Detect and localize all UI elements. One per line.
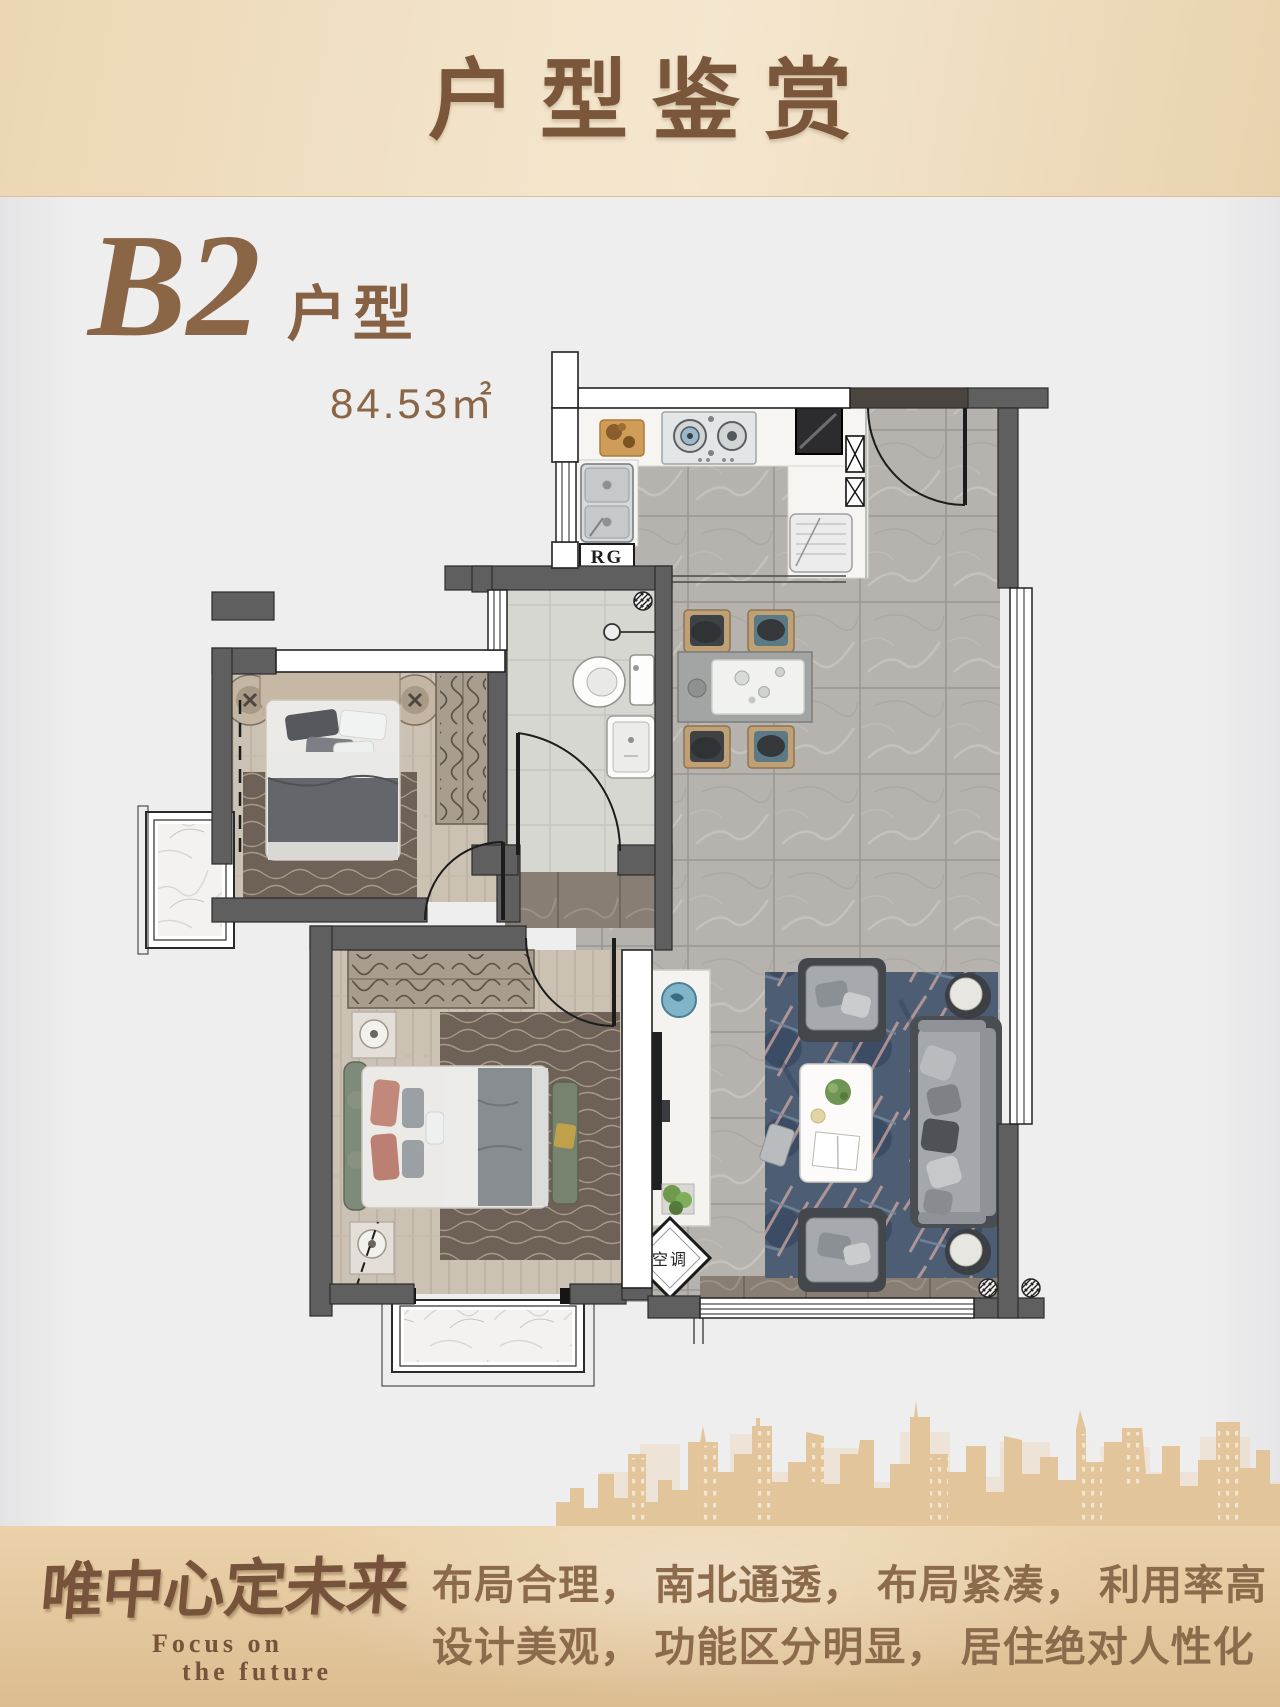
dining-table bbox=[678, 652, 812, 722]
bed-bench bbox=[552, 1082, 578, 1204]
side-table bbox=[945, 1229, 991, 1275]
window-bath-left bbox=[488, 590, 507, 650]
gas-meter-label: RG bbox=[580, 544, 634, 568]
footer-band: 唯中心定未来 Focus on the future 布局合理， 南北通透， 布… bbox=[0, 1526, 1280, 1707]
armchair bbox=[798, 958, 886, 1042]
toilet bbox=[573, 655, 654, 707]
cutting-board bbox=[600, 420, 644, 456]
floor-drain-icon bbox=[634, 592, 652, 610]
sofa bbox=[910, 1016, 1002, 1228]
window-living-bottom bbox=[694, 1298, 974, 1344]
selling-points-line2: 设计美观， 功能区分明显， 居住绝对人性化 bbox=[432, 1616, 1262, 1678]
ac-label: 空调 bbox=[652, 1251, 688, 1269]
selling-points-line1: 布局合理， 南北通透， 布局紧凑， 利用率高 bbox=[432, 1554, 1262, 1616]
nightstand-lamp bbox=[350, 1222, 394, 1274]
brand-slogan-cn: 唯中心定未来 bbox=[38, 1535, 437, 1632]
washing-machine bbox=[790, 514, 852, 572]
coffee-table bbox=[800, 1064, 872, 1182]
dining-chair bbox=[748, 726, 794, 768]
tv-console bbox=[648, 970, 710, 1226]
floor-drain-icon bbox=[979, 1279, 997, 1297]
wardrobe bbox=[436, 672, 490, 824]
window-living-right bbox=[1010, 588, 1032, 1124]
side-table bbox=[945, 973, 991, 1019]
flue-shaft bbox=[846, 436, 864, 506]
rg-label: RG bbox=[591, 547, 624, 568]
kitchen-sink bbox=[576, 460, 638, 546]
window-kitchen-left bbox=[556, 462, 576, 542]
wash-basin bbox=[607, 716, 655, 778]
gas-stove bbox=[662, 412, 756, 464]
brand-slogan-en-line2: the future bbox=[182, 1658, 432, 1686]
floor-drain-icon bbox=[1022, 1279, 1040, 1297]
bed-double bbox=[260, 664, 400, 860]
cooktop-black bbox=[796, 408, 842, 454]
floor-plan: RG bbox=[0, 0, 1280, 1707]
city-skyline bbox=[556, 1400, 1280, 1527]
hallway-floor bbox=[505, 872, 655, 928]
living-set bbox=[759, 958, 1002, 1292]
nightstand-lamp bbox=[352, 1012, 396, 1058]
bed-master bbox=[344, 1062, 548, 1210]
plant-pot bbox=[662, 1184, 694, 1215]
brand-logo: 唯中心定未来 Focus on the future bbox=[42, 1538, 432, 1686]
brand-slogan-en-line1: Focus on bbox=[152, 1630, 432, 1658]
wardrobe bbox=[348, 950, 534, 1008]
armchair bbox=[798, 1208, 886, 1292]
dining-chair bbox=[748, 610, 794, 652]
selling-points: 布局合理， 南北通透， 布局紧凑， 利用率高 设计美观， 功能区分明显， 居住绝… bbox=[432, 1554, 1262, 1678]
poster-page: 户型鉴赏 B2 户型 84.53㎡ bbox=[0, 0, 1280, 1707]
